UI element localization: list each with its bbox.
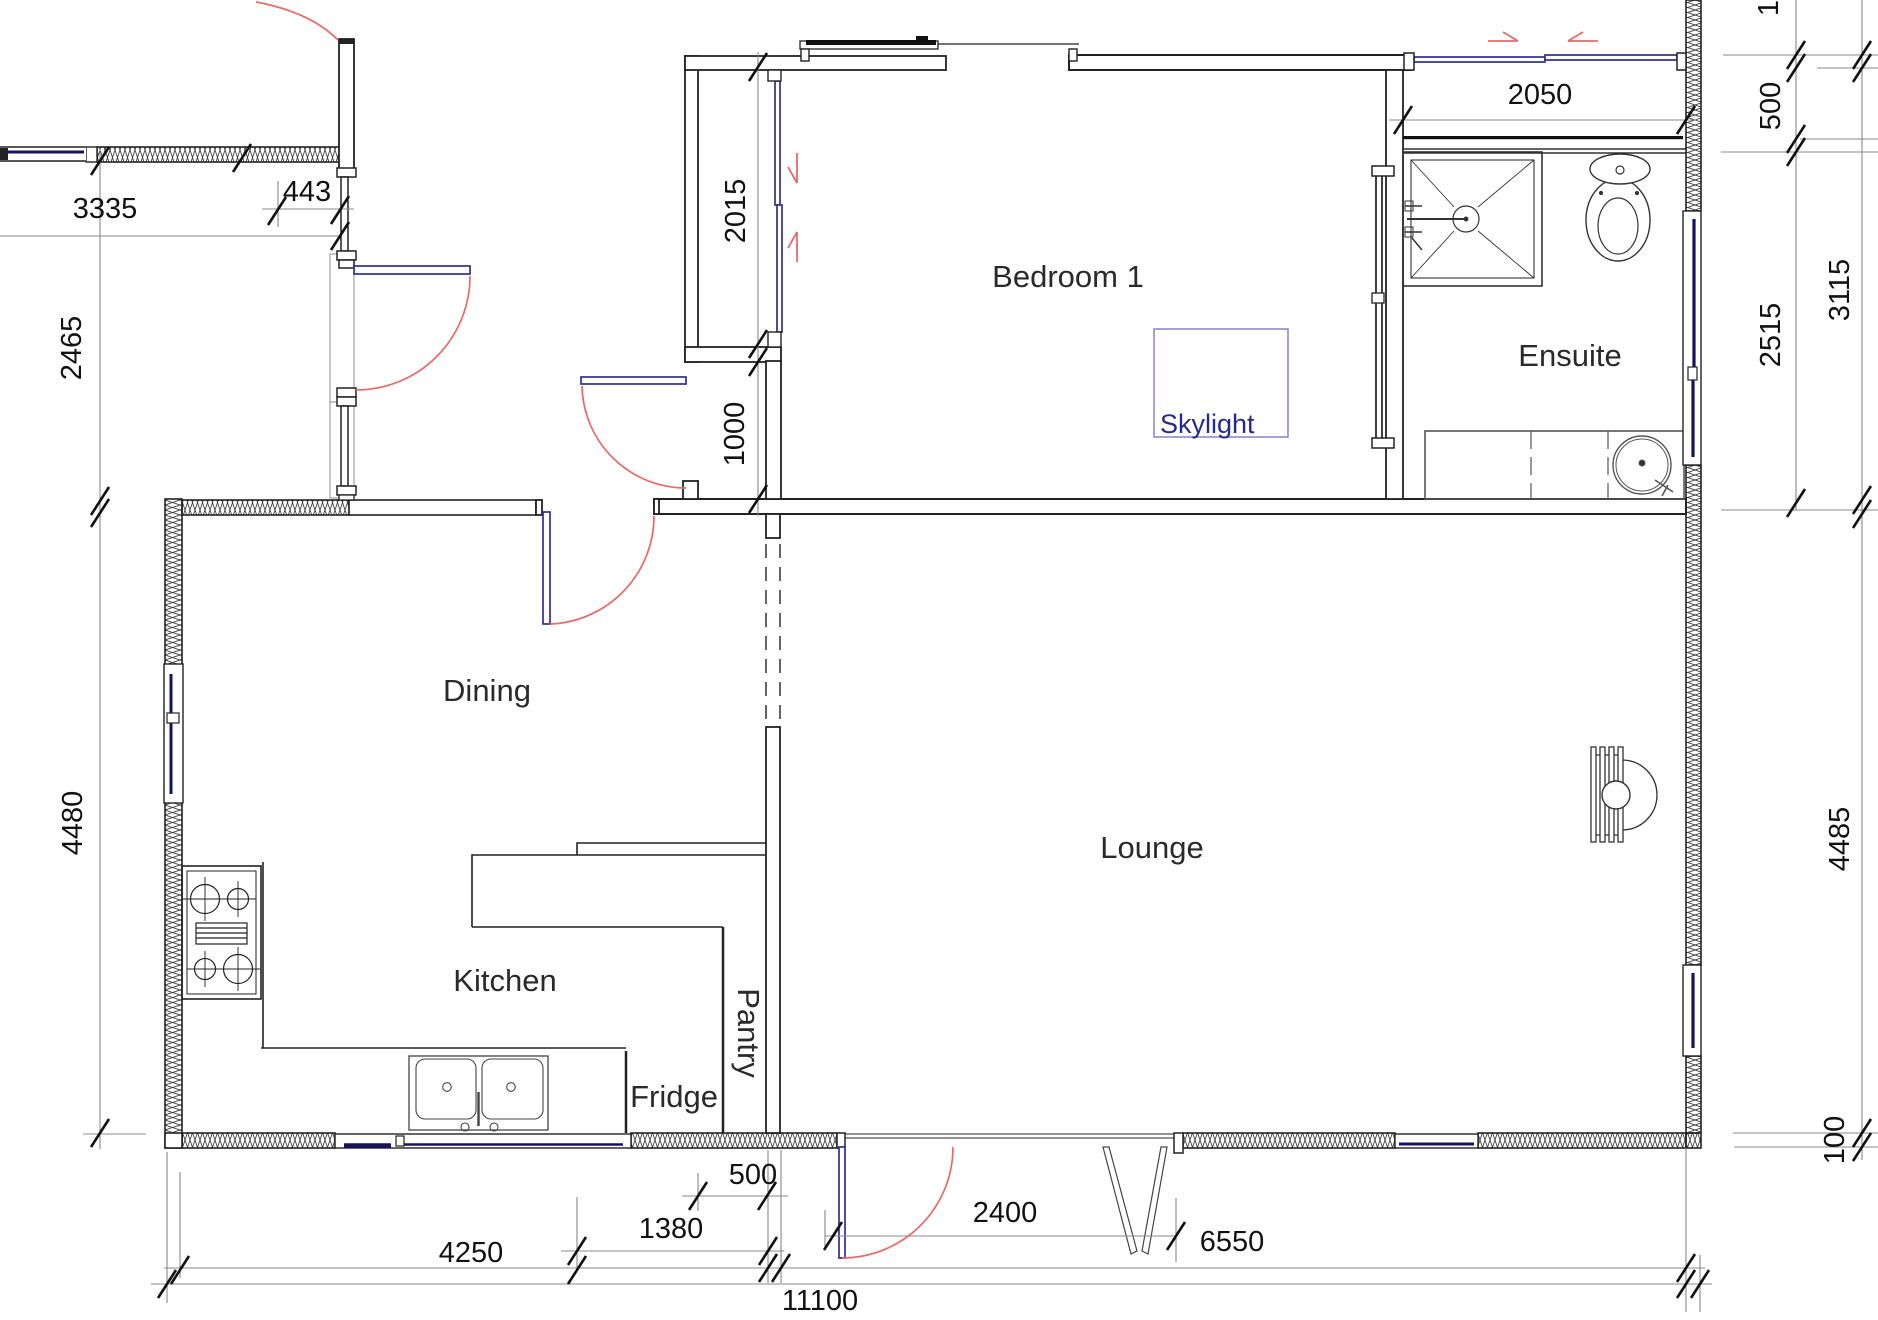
svg-text:Lounge: Lounge (1100, 830, 1203, 865)
svg-text:Kitchen: Kitchen (453, 963, 556, 998)
svg-text:1: 1 (1753, 0, 1785, 16)
svg-text:Bedroom 1: Bedroom 1 (992, 259, 1144, 294)
svg-text:Skylight: Skylight (1160, 409, 1255, 439)
svg-text:11100: 11100 (782, 1285, 858, 1317)
svg-text:Ensuite: Ensuite (1518, 338, 1621, 373)
svg-text:100: 100 (1819, 1116, 1851, 1164)
svg-text:3335: 3335 (73, 193, 138, 225)
svg-text:4250: 4250 (439, 1237, 504, 1269)
svg-text:6550: 6550 (1200, 1226, 1265, 1258)
svg-text:3115: 3115 (1824, 259, 1856, 321)
svg-text:Dining: Dining (443, 673, 531, 708)
svg-text:500: 500 (729, 1159, 777, 1191)
svg-text:2050: 2050 (1508, 79, 1573, 111)
svg-text:500: 500 (1755, 82, 1787, 130)
svg-text:4480: 4480 (57, 791, 89, 856)
svg-text:443: 443 (283, 176, 331, 208)
svg-text:1380: 1380 (639, 1213, 704, 1245)
svg-text:2515: 2515 (1755, 303, 1787, 368)
svg-text:Fridge: Fridge (630, 1079, 718, 1114)
svg-text:2015: 2015 (720, 179, 752, 244)
svg-text:1000: 1000 (719, 402, 751, 467)
svg-text:2400: 2400 (973, 1197, 1038, 1229)
svg-text:4485: 4485 (1824, 807, 1856, 872)
svg-text:Pantry: Pantry (731, 988, 766, 1078)
svg-text:2465: 2465 (56, 316, 88, 381)
